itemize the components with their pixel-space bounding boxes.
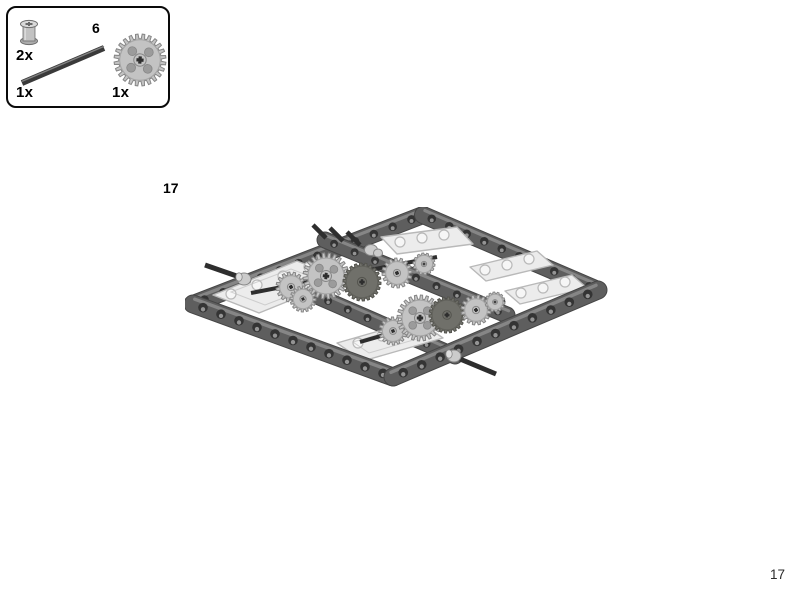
step-number: 17 [163,180,179,196]
parts-callout-box: 2x 6 1x 1x [6,6,170,108]
gear-24-tooth [112,32,168,88]
axle-part-icon [16,40,112,90]
assembly-illustration [185,207,615,402]
gear-24-tooth-part-icon [109,31,171,91]
axle-quantity: 1x [16,84,33,101]
bevel-gear [413,253,435,275]
clutch-gear [343,263,381,301]
axle-length-label: 6 [92,20,100,36]
page-number: 17 [770,567,785,582]
axle-connector [374,249,383,257]
gear-quantity: 1x [112,84,129,101]
